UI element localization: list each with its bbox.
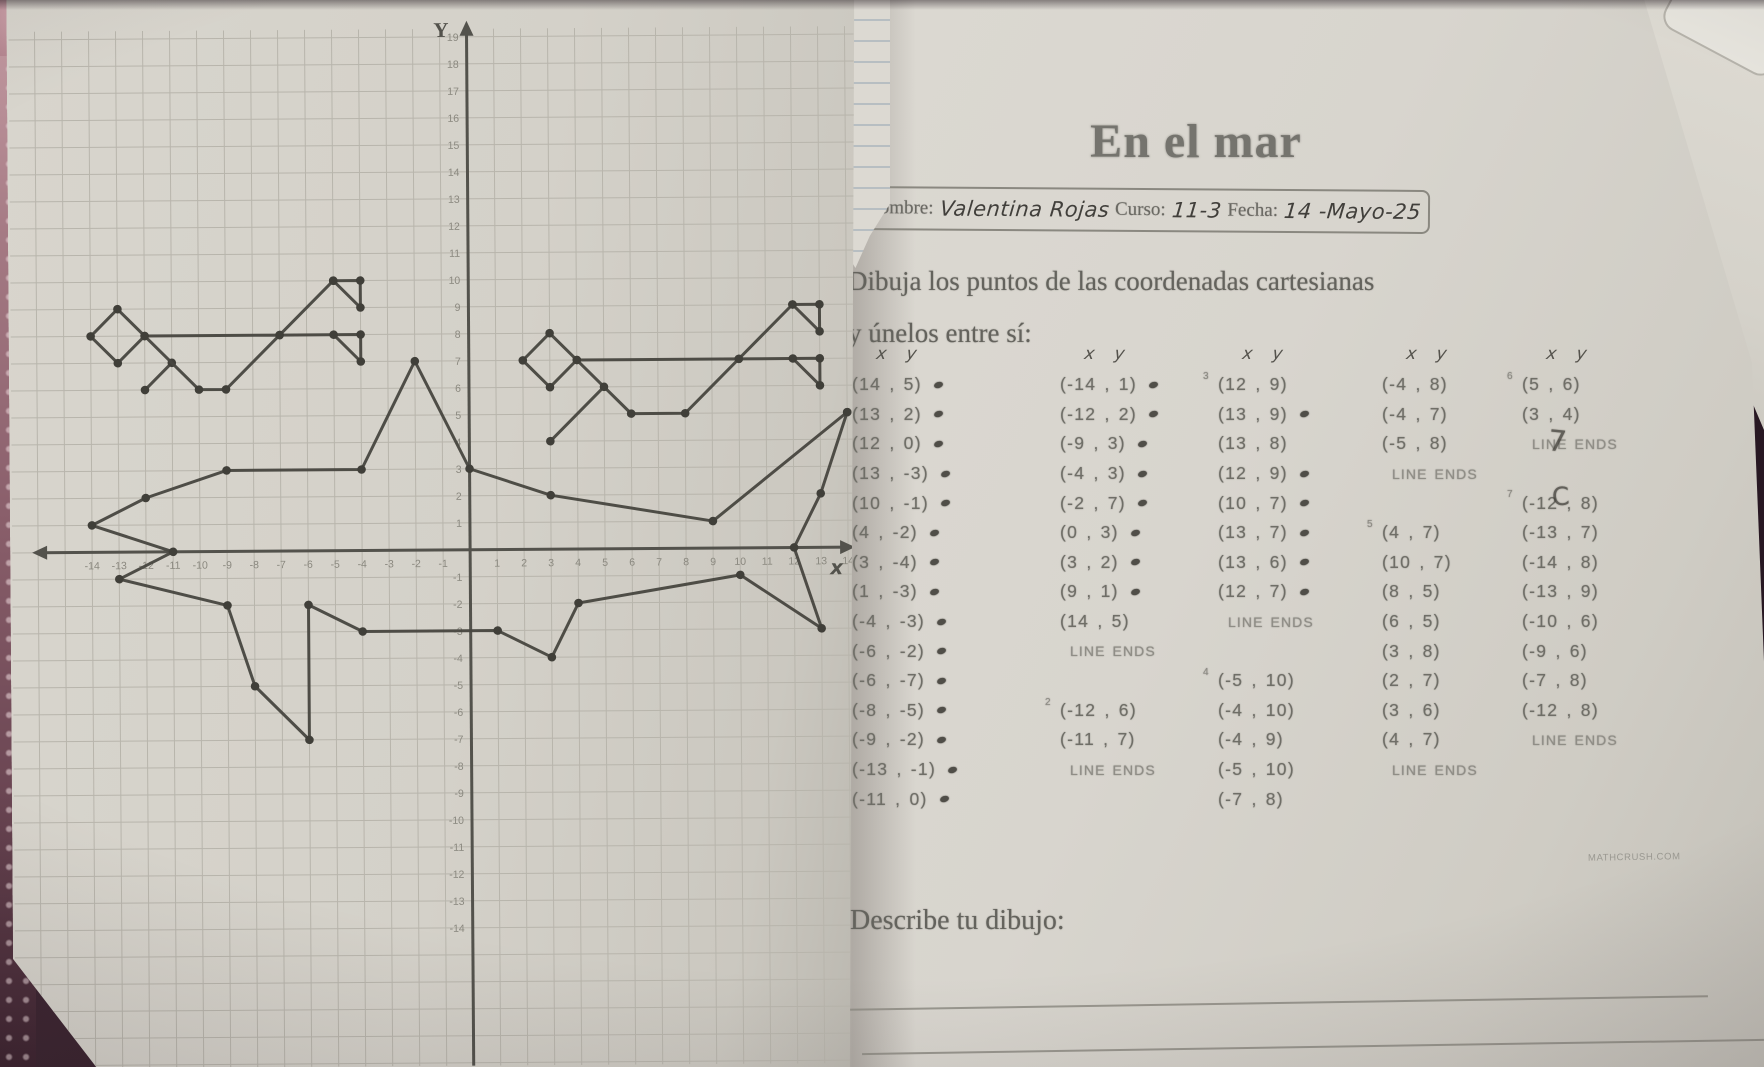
- svg-text:8: 8: [683, 556, 689, 568]
- coordinate-pair: (-4 , 3): [1060, 463, 1126, 484]
- svg-text:-10: -10: [193, 560, 208, 572]
- svg-text:-11: -11: [166, 560, 181, 572]
- svg-text:-4: -4: [453, 653, 463, 665]
- corner-sticker: [1658, 0, 1764, 81]
- coordinate-pair: (3 , 6): [1382, 700, 1441, 721]
- worksheet-page: En el mar Nombre: Valentina Rojas Curso:…: [766, 0, 1764, 1067]
- svg-text:x: x: [829, 555, 844, 579]
- group-number: 7: [1507, 489, 1514, 500]
- pen-check-dot: [933, 381, 943, 389]
- coordinate-entry: (3 , -4): [852, 548, 957, 578]
- coordinate-entry: (-4 , 8): [1382, 370, 1478, 400]
- svg-text:9: 9: [710, 556, 716, 568]
- column-gap: [1218, 636, 1314, 666]
- column-gap: [1060, 666, 1158, 696]
- coordinate-entry: (-8 , -5): [852, 696, 957, 726]
- pen-check-dot: [940, 469, 950, 477]
- coordinate-pair: (13 , -3): [852, 463, 929, 484]
- svg-text:-2: -2: [411, 558, 421, 570]
- coordinate-entry: (4 , -2): [852, 518, 957, 548]
- coordinate-entry: (-7 , 8): [1218, 784, 1314, 814]
- svg-text:13: 13: [448, 194, 460, 206]
- svg-text:17: 17: [447, 86, 459, 98]
- svg-text:-11: -11: [450, 842, 465, 854]
- x-column-header: x: [1544, 344, 1558, 370]
- group-number: 2: [1045, 697, 1052, 708]
- x-column-header: x: [1240, 344, 1254, 370]
- column-xy-header: xy: [1216, 344, 1315, 370]
- svg-text:14: 14: [448, 167, 460, 179]
- svg-text:-8: -8: [454, 761, 464, 773]
- photo-scene: 1500, 3520 En el mar Nombre: Valentina R…: [0, 0, 1764, 1067]
- coordinate-entry: (13 , 2): [852, 400, 957, 430]
- coordinate-entry: 6(5 , 6): [1522, 370, 1618, 400]
- pen-check-dot: [940, 499, 950, 507]
- coordinate-pair: (6 , 5): [1382, 611, 1441, 632]
- coordinate-pair: (13 , 2): [852, 404, 922, 425]
- coordinate-entry: (-4 , -3): [852, 607, 957, 637]
- line-ends-label: LINE ENDS: [1218, 607, 1314, 637]
- svg-text:-5: -5: [454, 680, 464, 692]
- pen-check-dot: [947, 765, 957, 773]
- coordinate-entry: (-11 , 0): [852, 784, 957, 814]
- coordinate-pair: (-13 , 7): [1522, 522, 1599, 543]
- svg-text:4: 4: [575, 557, 581, 569]
- coordinate-pair: (13 , 9): [1218, 404, 1288, 425]
- pen-check-dot: [939, 795, 949, 803]
- svg-text:8: 8: [455, 329, 461, 341]
- coordinate-entry: (10 , 7): [1382, 548, 1478, 578]
- coordinate-entry: 3(12 , 9): [1218, 370, 1314, 400]
- coordinate-pair: (-5 , 10): [1218, 670, 1295, 691]
- svg-text:-10: -10: [449, 815, 464, 827]
- column-xy-header: xy: [850, 344, 959, 370]
- coordinate-pair: (4 , 7): [1382, 522, 1441, 543]
- coordinate-pair: (9 , 1): [1060, 581, 1119, 602]
- svg-text:1: 1: [494, 558, 500, 570]
- pen-check-dot: [929, 529, 939, 537]
- svg-text:-4: -4: [358, 558, 368, 570]
- coordinate-pair: (-5 , 8): [1382, 433, 1448, 454]
- line-ends-label: LINE ENDS: [1382, 459, 1478, 489]
- svg-text:18: 18: [447, 59, 459, 71]
- coordinate-entry: (-9 , 6): [1522, 636, 1618, 666]
- svg-text:3: 3: [456, 464, 462, 476]
- group-number: 5: [1367, 519, 1374, 530]
- group-number: 6: [1507, 371, 1514, 382]
- coordinate-pair: (-4 , 7): [1382, 404, 1448, 425]
- coordinate-entry: (2 , 7): [1382, 666, 1478, 696]
- coordinate-entry: (13 , 7): [1218, 518, 1314, 548]
- coordinate-column-3: xy3(12 , 9)(13 , 9)(13 , 8)(12 , 9)(10 ,…: [1218, 344, 1314, 814]
- coordinate-pair: (-4 , 10): [1218, 700, 1295, 721]
- coordinate-entry: (10 , -1): [852, 488, 957, 518]
- coordinate-entry: (-10 , 6): [1522, 607, 1618, 637]
- pen-check-dot: [1299, 469, 1309, 477]
- coordinate-pair: (-4 , 9): [1218, 729, 1284, 750]
- coordinate-pair: (1 , -3): [852, 581, 918, 602]
- coordinate-pair: (-11 , 7): [1060, 729, 1136, 750]
- column-gap: [1382, 488, 1478, 518]
- coordinate-entry: (-7 , 8): [1522, 666, 1618, 696]
- svg-text:7: 7: [656, 556, 662, 568]
- pen-check-dot: [1299, 558, 1309, 566]
- coordinate-pair: (3 , 8): [1382, 641, 1441, 662]
- pen-check-dot: [1299, 410, 1309, 418]
- coordinate-entry: (12 , 0): [852, 429, 957, 459]
- svg-text:19: 19: [447, 32, 459, 44]
- coordinate-pair: (-7 , 8): [1522, 670, 1588, 691]
- group-number: 4: [1203, 667, 1210, 678]
- svg-text:11: 11: [449, 248, 460, 260]
- x-column-header: x: [1082, 344, 1096, 370]
- coordinate-entry: (0 , 3): [1060, 518, 1158, 548]
- coordinate-column-1: xy1(14 , 5)(13 , 2)(12 , 0)(13 , -3)(10 …: [852, 344, 957, 814]
- coordinate-pair: (10 , -1): [852, 493, 929, 514]
- svg-text:16: 16: [447, 113, 459, 125]
- coordinate-pair: (-9 , -2): [852, 729, 925, 750]
- pen-check-dot: [1148, 410, 1158, 418]
- coordinate-column-2: xy(-14 , 1)(-12 , 2)(-9 , 3)(-4 , 3)(-2 …: [1060, 344, 1158, 784]
- column-xy-header: xy: [1380, 344, 1479, 370]
- svg-text:-14: -14: [450, 923, 465, 935]
- coordinate-pair: (3 , 2): [1060, 552, 1119, 573]
- coordinate-entry: (-14 , 1): [1060, 370, 1158, 400]
- coordinate-pair: (12 , 9): [1218, 374, 1288, 395]
- coordinate-pair: (4 , -2): [852, 522, 918, 543]
- svg-text:-5: -5: [331, 559, 341, 571]
- svg-text:12: 12: [448, 221, 460, 233]
- coordinate-pair: (-7 , 8): [1218, 789, 1284, 810]
- coordinate-entry: (12 , 9): [1218, 459, 1314, 489]
- svg-text:2: 2: [521, 557, 527, 569]
- svg-text:-6: -6: [454, 707, 464, 719]
- coordinate-pair: (-6 , -2): [852, 641, 925, 662]
- svg-text:11: 11: [762, 556, 773, 568]
- coordinate-entry: (-13 , 7): [1522, 518, 1618, 548]
- coordinate-entry: (13 , 8): [1218, 429, 1314, 459]
- x-column-header: x: [1404, 344, 1418, 370]
- coordinate-pair: (5 , 6): [1522, 374, 1581, 395]
- coordinate-pair: (0 , 3): [1060, 522, 1119, 543]
- coordinate-entry: (-13 , 9): [1522, 577, 1618, 607]
- coordinate-entry: (-12 , 2): [1060, 400, 1158, 430]
- coordinate-entry: (-4 , 3): [1060, 459, 1158, 489]
- y-column-header: y: [1270, 344, 1284, 370]
- coordinate-column-5: xy6(5 , 6)(3 , 4)LINE ENDS7(-12 , 8)(-13…: [1522, 344, 1618, 755]
- coordinate-pair: (10 , 7): [1382, 552, 1452, 573]
- coordinate-pair: (3 , -4): [852, 552, 918, 573]
- coordinate-pair: (12 , 9): [1218, 463, 1288, 484]
- y-column-header: y: [904, 344, 918, 370]
- coordinate-entry: (-11 , 7): [1060, 725, 1158, 755]
- coordinate-entry: 5(4 , 7): [1382, 518, 1478, 548]
- svg-text:-13: -13: [112, 560, 127, 572]
- svg-text:1: 1: [456, 518, 462, 530]
- y-column-header: y: [1574, 344, 1588, 370]
- pen-check-dot: [1137, 469, 1147, 477]
- svg-text:-8: -8: [250, 559, 260, 571]
- coordinate-pair: (13 , 6): [1218, 552, 1288, 573]
- coordinate-entry: (13 , -3): [852, 459, 957, 489]
- coordinate-entry: (-4 , 9): [1218, 725, 1314, 755]
- coordinate-entry: (3 , 8): [1382, 636, 1478, 666]
- coordinate-entry: (-9 , -2): [852, 725, 957, 755]
- coordinate-entry: (13 , 6): [1218, 548, 1314, 578]
- coordinate-pair: (-5 , 10): [1218, 759, 1295, 780]
- pen-check-dot: [929, 558, 939, 566]
- coordinate-entry: (-4 , 10): [1218, 696, 1314, 726]
- coordinate-pair: (-11 , 0): [852, 789, 928, 810]
- coordinate-pair: (-4 , 8): [1382, 374, 1448, 395]
- svg-text:10: 10: [449, 275, 461, 287]
- coordinate-pair: (13 , 8): [1218, 433, 1288, 454]
- pen-check-dot: [1299, 529, 1309, 537]
- coordinate-entry: (10 , 7): [1218, 488, 1314, 518]
- watermark: MATHCRUSH.COM: [1588, 851, 1681, 864]
- coordinate-column-4: xy(-4 , 8)(-4 , 7)(-5 , 8)LINE ENDS5(4 ,…: [1382, 344, 1478, 784]
- coordinate-pair: (-12 , 6): [1060, 700, 1137, 721]
- coordinate-pair: (3 , 4): [1522, 404, 1581, 425]
- svg-text:10: 10: [734, 556, 746, 568]
- coordinate-entry: (3 , 2): [1060, 548, 1158, 578]
- column-xy-header: xy: [1520, 344, 1619, 370]
- coordinate-entry: (-6 , -7): [852, 666, 957, 696]
- pen-check-dot: [1137, 499, 1147, 507]
- coordinate-pair: (-13 , -1): [852, 759, 936, 780]
- coordinate-pair: (12 , 7): [1218, 581, 1288, 602]
- coordinate-pair: (-12 , 8): [1522, 700, 1599, 721]
- svg-text:6: 6: [455, 383, 461, 395]
- coordinate-pair: (2 , 7): [1382, 670, 1441, 691]
- graph-page: -14-13-12-11-10-9-8-7-6-5-4-3-2-11234567…: [6, 0, 861, 1067]
- svg-text:15: 15: [448, 140, 460, 152]
- coordinate-pair: (-12 , 2): [1060, 404, 1137, 425]
- coordinate-entry: (-5 , 10): [1218, 755, 1314, 785]
- line-ends-label: LINE ENDS: [1382, 755, 1478, 785]
- svg-text:2: 2: [456, 491, 462, 503]
- coordinate-entry: (-9 , 3): [1060, 429, 1158, 459]
- svg-text:6: 6: [629, 557, 635, 569]
- coordinate-entry: (8 , 5): [1382, 577, 1478, 607]
- svg-text:-1: -1: [438, 558, 448, 570]
- svg-text:-7: -7: [277, 559, 287, 571]
- coordinate-entry: (-5 , 8): [1382, 429, 1478, 459]
- coordinate-entry: 2(-12 , 6): [1060, 696, 1158, 726]
- coordinate-entry: (13 , 9): [1218, 400, 1314, 430]
- coordinate-pair: (-2 , 7): [1060, 493, 1126, 514]
- coordinate-entry: (-12 , 8): [1522, 696, 1618, 726]
- coordinate-pair: (-9 , 6): [1522, 641, 1588, 662]
- x-column-header: x: [874, 344, 888, 370]
- svg-text:-14: -14: [85, 560, 100, 572]
- pen-check-dot: [1130, 529, 1140, 537]
- coordinate-pair: (12 , 0): [852, 433, 922, 454]
- describe-label: Describe tu dibujo:: [850, 905, 1065, 937]
- coordinate-pair: (-14 , 8): [1522, 552, 1599, 573]
- pen-check-dot: [933, 410, 943, 418]
- svg-text:-2: -2: [453, 599, 463, 611]
- coordinate-entry: (3 , 4): [1522, 400, 1618, 430]
- pen-check-dot: [1299, 499, 1309, 507]
- svg-text:-3: -3: [385, 558, 395, 570]
- y-column-header: y: [1434, 344, 1448, 370]
- svg-text:-13: -13: [449, 896, 464, 908]
- pen-check-dot: [1130, 588, 1140, 596]
- stray-pen-mark: 7: [1546, 423, 1568, 459]
- coordinate-pair: (-13 , 9): [1522, 581, 1599, 602]
- svg-text:Y: Y: [433, 18, 448, 42]
- coordinate-pair: (8 , 5): [1382, 581, 1441, 602]
- pen-check-dot: [936, 647, 946, 655]
- coordinate-pair: (-4 , -3): [852, 611, 925, 632]
- svg-text:-9: -9: [223, 559, 233, 571]
- coordinate-pair: (-10 , 6): [1522, 611, 1599, 632]
- svg-text:7: 7: [455, 356, 461, 368]
- svg-text:-1: -1: [453, 572, 463, 584]
- svg-text:13: 13: [815, 555, 827, 567]
- svg-text:-12: -12: [449, 869, 464, 881]
- pen-check-dot: [936, 617, 946, 625]
- line-ends-label: LINE ENDS: [1522, 725, 1618, 755]
- pen-check-dot: [1148, 381, 1158, 389]
- coordinate-entry: (-13 , -1): [852, 755, 957, 785]
- coordinate-pair: (-8 , -5): [852, 700, 925, 721]
- coordinate-entry: (4 , 7): [1382, 725, 1478, 755]
- coordinate-entry: (3 , 6): [1382, 696, 1478, 726]
- pen-check-dot: [1130, 558, 1140, 566]
- svg-text:5: 5: [602, 557, 608, 569]
- svg-text:5: 5: [455, 410, 461, 422]
- svg-text:3: 3: [548, 557, 554, 569]
- pen-check-dot: [933, 440, 943, 448]
- coordinate-entry: (12 , 7): [1218, 577, 1314, 607]
- pen-check-dot: [1299, 588, 1309, 596]
- coordinate-entry: (-6 , -2): [852, 636, 957, 666]
- coordinate-entry: (14 , 5): [1060, 607, 1158, 637]
- y-column-header: y: [1112, 344, 1126, 370]
- pen-check-dot: [936, 706, 946, 714]
- coordinate-pair: (14 , 5): [1060, 611, 1130, 632]
- coordinate-pair: (-9 , 3): [1060, 433, 1126, 454]
- group-number: 3: [1203, 371, 1210, 382]
- line-ends-label: LINE ENDS: [1060, 755, 1158, 785]
- coordinate-grid-drawing: -14-13-12-11-10-9-8-7-6-5-4-3-2-11234567…: [8, 0, 860, 1067]
- stray-pen-mark: C: [1551, 481, 1570, 511]
- coordinate-pair: (10 , 7): [1218, 493, 1288, 514]
- coordinate-pair: (-14 , 1): [1060, 374, 1137, 395]
- coordinate-entry: 4(-5 , 10): [1218, 666, 1314, 696]
- coordinate-entry: (-2 , 7): [1060, 488, 1158, 518]
- svg-text:-7: -7: [454, 734, 464, 746]
- pen-check-dot: [936, 676, 946, 684]
- pen-check-dot: [1137, 440, 1147, 448]
- coordinate-pair: (14 , 5): [852, 374, 922, 395]
- line-ends-label: LINE ENDS: [1522, 429, 1618, 459]
- column-xy-header: xy: [1058, 344, 1160, 370]
- coordinate-pair: (-6 , -7): [852, 670, 925, 691]
- svg-text:-6: -6: [304, 559, 314, 571]
- coordinate-entry: (9 , 1): [1060, 577, 1158, 607]
- line-ends-label: LINE ENDS: [1060, 636, 1158, 666]
- coordinate-entry: (6 , 5): [1382, 607, 1478, 637]
- coordinate-entry: (1 , -3): [852, 577, 957, 607]
- coordinate-entry: (-4 , 7): [1382, 400, 1478, 430]
- column-gap: [1522, 459, 1618, 489]
- coordinate-entry: (-14 , 8): [1522, 548, 1618, 578]
- pen-check-dot: [929, 588, 939, 596]
- coordinate-entry: 1(14 , 5): [852, 370, 957, 400]
- svg-text:9: 9: [455, 302, 461, 314]
- pen-check-dot: [936, 736, 946, 744]
- coordinate-pair: (4 , 7): [1382, 729, 1441, 750]
- coordinate-pair: (13 , 7): [1218, 522, 1288, 543]
- svg-text:-9: -9: [454, 788, 464, 800]
